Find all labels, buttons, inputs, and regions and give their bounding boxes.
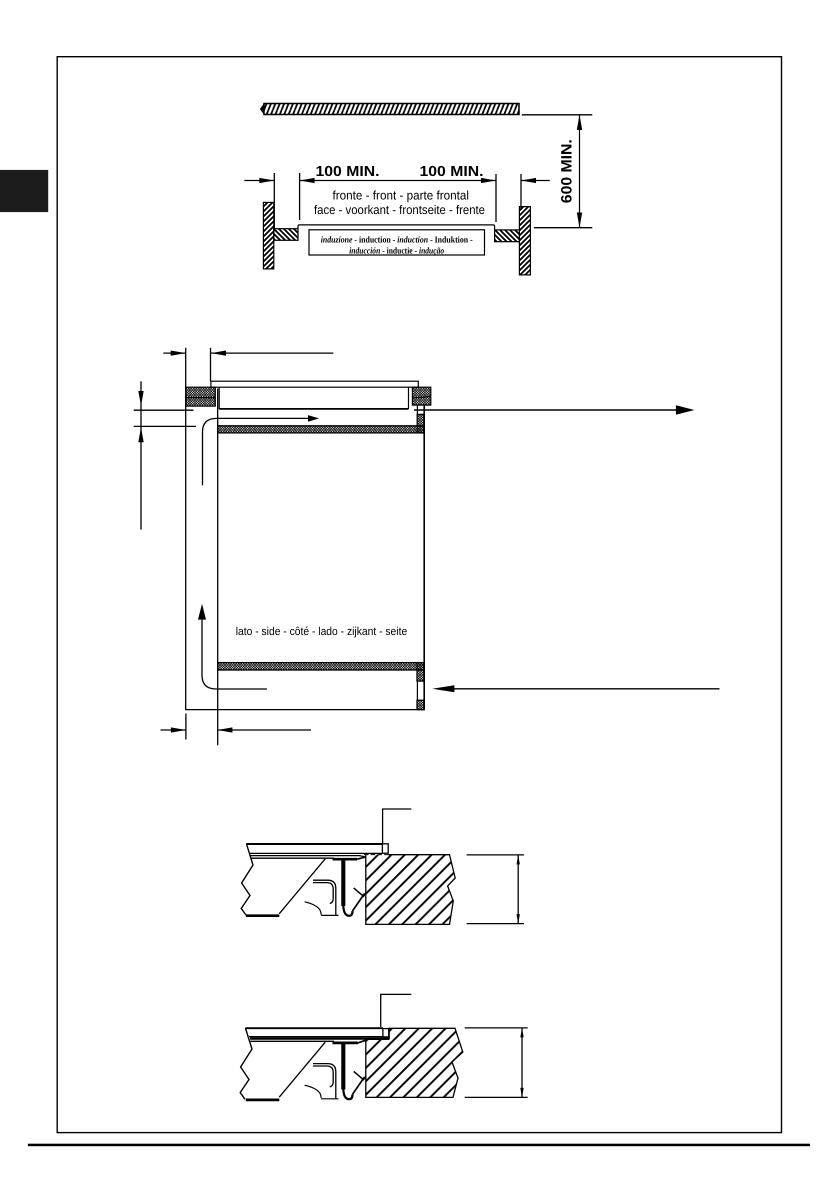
svg-text:inducción - inductie - indução: inducción - inductie - indução	[349, 245, 444, 255]
svg-text:face - voorkant - frontseite -: face - voorkant - frontseite - frente	[314, 203, 485, 217]
svg-text:induzione - induction - induct: induzione - induction - induction - Indu…	[321, 235, 473, 245]
svg-text:100 MIN.: 100 MIN.	[316, 164, 380, 180]
svg-text:lato - side - côté - lado - zi: lato - side - côté - lado - zijkant - se…	[236, 626, 408, 638]
svg-text:fronte - front - parte frontal: fronte - front - parte frontal	[333, 189, 470, 203]
svg-text:100 MIN.: 100 MIN.	[420, 164, 484, 180]
svg-text:600 MIN.: 600 MIN.	[559, 139, 576, 203]
